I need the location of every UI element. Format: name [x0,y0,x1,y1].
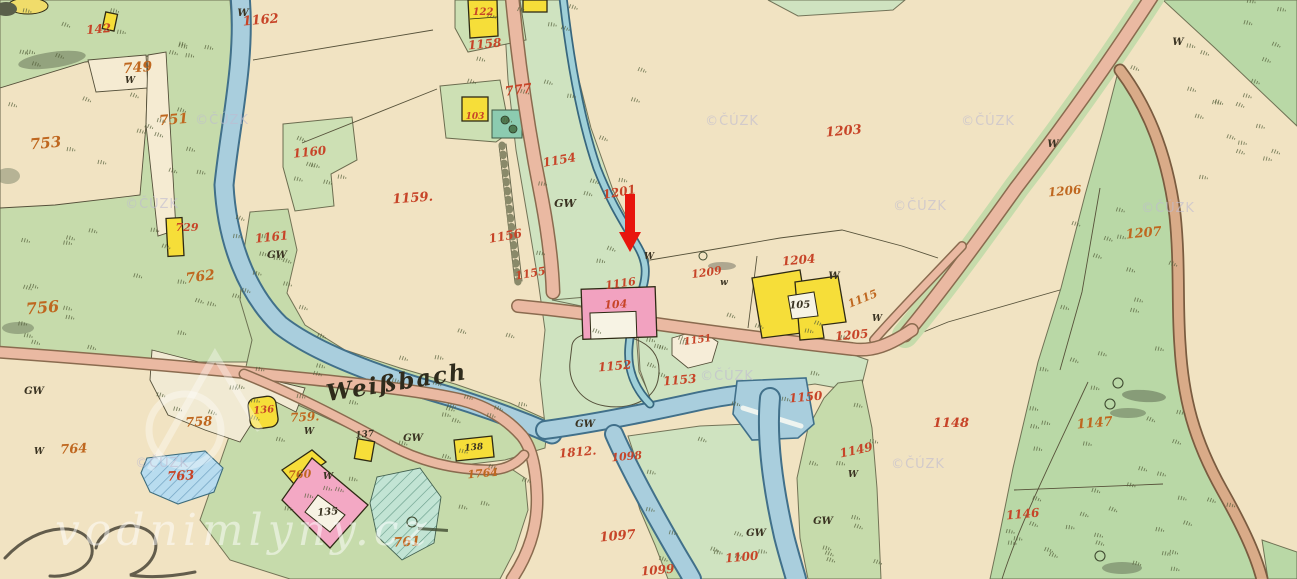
cuzk-watermark: ©ČÚZK [700,368,754,384]
map-label: 136 [253,404,275,417]
cuzk-watermark: ©ČÚZK [125,196,179,212]
map-label: 1764 [467,466,499,482]
map-label: W [1172,37,1185,48]
map-label: 122 [473,7,494,18]
map-label: W [872,314,883,324]
map-label: w [720,278,728,288]
map-label: 764 [60,441,88,457]
map-label: 751 [158,111,189,129]
map-label: 105 [789,299,810,311]
map-label: 1148 [933,416,969,431]
building-104-court [590,311,637,339]
map-label: W [828,271,841,282]
map-label: GW [554,197,577,210]
map-label: 1097 [599,527,636,545]
map-label: 137 [355,429,375,441]
map-label: GW [746,528,768,539]
map-label: 1204 [781,252,815,269]
map-label: W [323,472,334,482]
map-label: 760 [288,467,312,481]
map-label: 1152 [597,358,631,375]
map-label: 1162 [242,11,279,29]
map-label: 1100 [724,549,759,566]
map-label: 1153 [662,372,696,389]
cuzk-watermark: ©ČÚZK [705,113,759,129]
map-label: 1146 [1005,506,1040,523]
map-label: 756 [25,297,60,319]
map-label: 1098 [611,449,643,465]
map-label: 1203 [825,122,862,140]
map-label: W [34,447,45,457]
cuzk-watermark: ©ČÚZK [195,112,249,128]
map-label: 1205 [834,327,868,344]
map-label: 142 [86,21,112,37]
map-label: 1207 [1125,224,1162,242]
garden-parcel [492,110,522,138]
map-label: W [125,76,136,86]
map-label: 759. [290,409,320,425]
map-label: W [644,252,655,262]
cuzk-watermark: ©ČÚZK [1141,200,1195,216]
map-label: 103 [466,112,485,122]
map-label: 1150 [788,389,823,406]
map-label: 753 [29,133,62,154]
building-137 [354,439,374,462]
map-label: 1147 [1076,414,1113,432]
map-label: 758 [185,414,213,430]
map-canvas[interactable]: W1162142749W75175311601159.1161GW7627567… [0,0,1297,579]
map-label: 138 [464,442,484,454]
building-top [523,0,547,12]
map-label: 1159. [392,190,434,208]
map-label: GW [575,419,597,430]
map-label: 1099 [640,562,675,579]
map-label: W [304,427,315,437]
map-label: GW [813,516,835,527]
map-label: 1206 [1047,183,1082,200]
cuzk-watermark: ©ČÚZK [135,455,189,471]
map-label: 749 [122,59,153,78]
site-watermark: vodnimlyny.cz [55,505,432,556]
map-label: 729 [176,221,199,234]
map-label: W [848,470,859,480]
map-label: 1158 [467,36,502,53]
cuzk-watermark: ©ČÚZK [961,113,1015,129]
map-label: GW [267,250,289,261]
map-label: W [1047,139,1060,150]
cadastral-map-viewport: W1162142749W75175311601159.1161GW7627567… [0,0,1297,579]
map-label: GW [24,386,46,397]
map-label: GW [403,433,425,444]
cuzk-watermark: ©ČÚZK [891,456,945,472]
cuzk-watermark: ©ČÚZK [893,198,947,214]
map-label: 104 [604,297,628,311]
